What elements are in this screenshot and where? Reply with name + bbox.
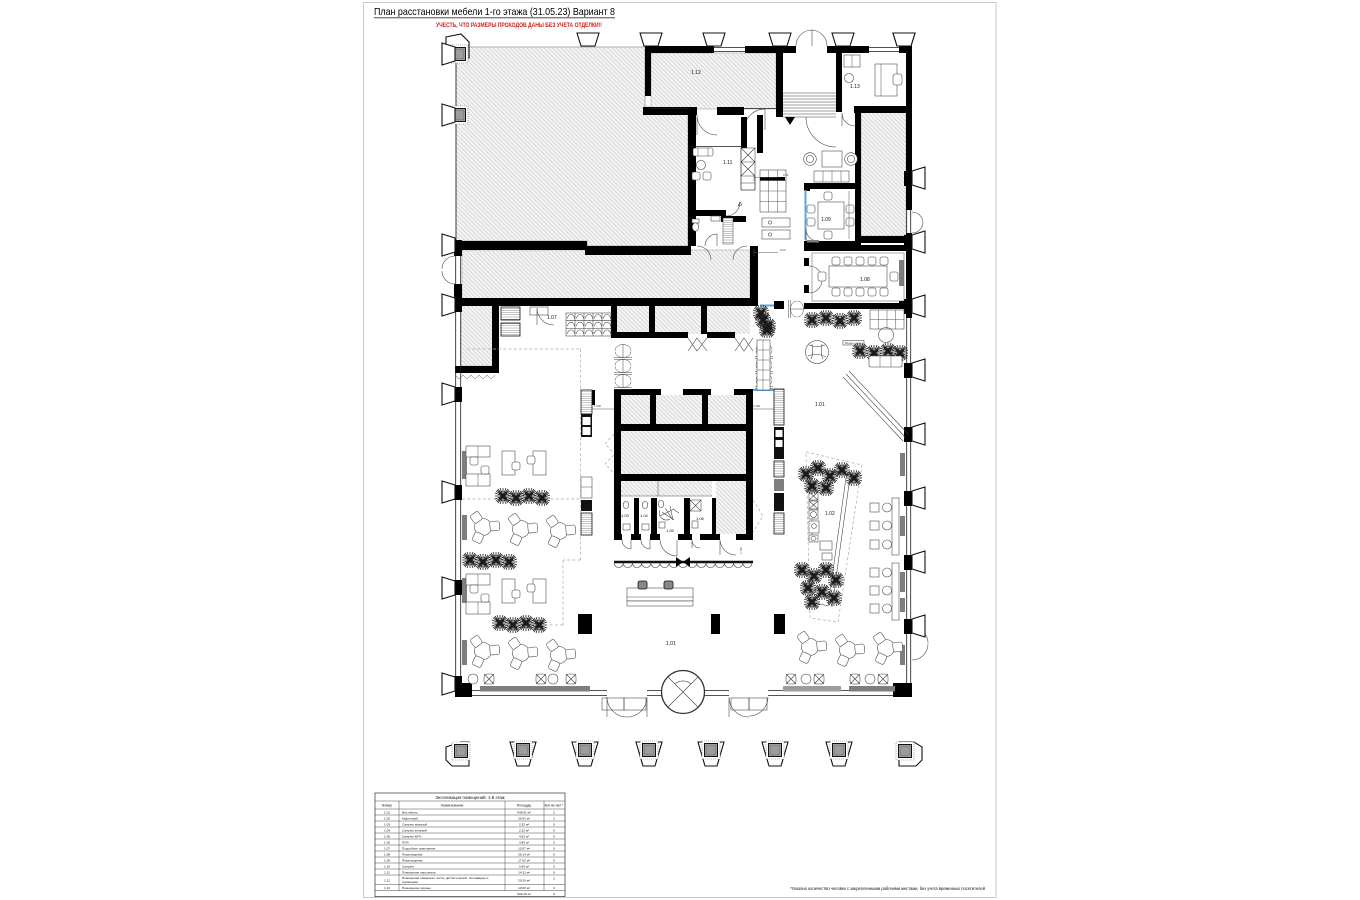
svg-text:0: 0: [553, 858, 555, 862]
svg-text:1.03: 1.03: [621, 513, 630, 518]
svg-text:Наименование: Наименование: [441, 804, 464, 808]
svg-text:Переговорная: Переговорная: [402, 858, 423, 862]
svg-text:1.08: 1.08: [384, 852, 390, 856]
svg-text:1.08: 1.08: [860, 277, 870, 283]
svg-text:1.500: 1.500: [753, 404, 760, 408]
svg-text:Кафетерий: Кафетерий: [402, 816, 418, 820]
svg-text:1.02: 1.02: [384, 816, 390, 820]
svg-text:0: 0: [553, 822, 555, 826]
svg-text:1.12: 1.12: [384, 878, 390, 882]
svg-text:10.00 м²: 10.00 м²: [518, 886, 530, 890]
svg-text:26.91 м²: 26.91 м²: [518, 816, 530, 820]
svg-text:2: 2: [553, 816, 555, 820]
svg-text:902.20 м²: 902.20 м²: [517, 892, 530, 896]
svg-text:1.10: 1.10: [384, 864, 390, 868]
svg-text:1.02: 1.02: [825, 511, 835, 517]
svg-text:0.00: 0.00: [780, 248, 786, 252]
svg-text:Санузел: Санузел: [402, 864, 414, 868]
svg-text:1.07: 1.07: [547, 315, 557, 321]
svg-text:1.11: 1.11: [384, 870, 390, 874]
svg-text:9: 9: [553, 892, 555, 896]
svg-text:Помещение охраны: Помещение охраны: [402, 886, 431, 890]
svg-text:17.02 м²: 17.02 м²: [518, 858, 530, 862]
svg-text:План расстановки мебели 1-го э: План расстановки мебели 1-го этажа (31.0…: [374, 6, 615, 18]
svg-text:УЧЕСТЬ, ЧТО РАЗМЕРЫ ПРОХОДОВ Д: УЧЕСТЬ, ЧТО РАЗМЕРЫ ПРОХОДОВ ДАНЫ БЕЗ УЧ…: [436, 22, 602, 29]
svg-text:0: 0: [553, 834, 555, 838]
svg-text:охранщика: охранщика: [402, 880, 418, 884]
svg-text:0.00: 0.00: [783, 173, 789, 177]
svg-text:Санузел женский: Санузел женский: [402, 828, 427, 832]
svg-text:1.150: 1.150: [739, 547, 743, 554]
svg-text:1.500: 1.500: [594, 404, 601, 408]
svg-text:4.53 м²: 4.53 м²: [519, 834, 529, 838]
svg-text:*Указано количество человек с: *Указано количество человек с закрепленн…: [790, 886, 985, 891]
svg-text:1.07: 1.07: [384, 846, 390, 850]
svg-text:0: 0: [553, 840, 555, 844]
svg-text:Кол-во чел.*: Кол-во чел.*: [545, 804, 564, 808]
svg-text:648.91 м²: 648.91 м²: [517, 810, 530, 814]
svg-text:Номер: Номер: [382, 804, 392, 808]
svg-text:3: 3: [553, 877, 555, 881]
svg-text:Медиа экран: Медиа экран: [845, 341, 862, 345]
svg-text:0: 0: [553, 852, 555, 856]
svg-text:3.80 м²: 3.80 м²: [519, 840, 529, 844]
svg-text:1.13: 1.13: [850, 84, 860, 90]
svg-text:1.03: 1.03: [384, 822, 390, 826]
svg-text:25.14 м²: 25.14 м²: [518, 852, 530, 856]
svg-text:1.13: 1.13: [384, 886, 390, 890]
svg-text:1.09: 1.09: [821, 217, 831, 223]
svg-text:ПУИ: ПУИ: [402, 840, 408, 844]
svg-text:2.60 м²: 2.60 м²: [519, 864, 529, 868]
svg-text:0: 0: [553, 846, 555, 850]
svg-text:1.12: 1.12: [691, 70, 701, 76]
svg-text:Подсобное помещение: Подсобное помещение: [402, 846, 436, 850]
svg-text:12.07 м²: 12.07 м²: [518, 846, 530, 850]
svg-text:Санузел МГН: Санузел МГН: [402, 834, 421, 838]
svg-text:Переговорная: Переговорная: [402, 852, 423, 856]
svg-text:1.05: 1.05: [666, 528, 675, 533]
svg-text:0: 0: [553, 864, 555, 868]
svg-text:2.32 м²: 2.32 м²: [519, 822, 529, 826]
svg-text:2: 2: [553, 810, 555, 814]
svg-text:29.26 м²: 29.26 м²: [518, 878, 530, 882]
svg-text:Санузел мужской: Санузел мужской: [402, 822, 427, 826]
svg-text:1.01: 1.01: [666, 641, 676, 647]
svg-text:2: 2: [553, 886, 555, 890]
svg-text:0: 0: [553, 828, 555, 832]
svg-text:1.09: 1.09: [384, 858, 390, 862]
svg-text:1.01: 1.01: [384, 810, 390, 814]
svg-text:1.06: 1.06: [384, 840, 390, 844]
svg-text:1.06: 1.06: [696, 516, 705, 521]
svg-text:0: 0: [553, 870, 555, 874]
svg-text:Помещение персонала: Помещение персонала: [402, 870, 436, 874]
svg-text:14.31 м²: 14.31 м²: [518, 870, 530, 874]
svg-text:2.32 м²: 2.32 м²: [519, 828, 529, 832]
svg-text:1.11: 1.11: [723, 160, 733, 166]
svg-text:Экспликация помещений. 1-й эта: Экспликация помещений. 1-й этаж: [435, 795, 504, 800]
svg-text:Площадь: Площадь: [517, 804, 532, 808]
svg-text:1.01: 1.01: [815, 402, 825, 408]
svg-text:Вестибюль: Вестибюль: [402, 810, 418, 814]
svg-text:1.04: 1.04: [640, 513, 649, 518]
svg-text:1.04: 1.04: [384, 828, 390, 832]
svg-text:1.05: 1.05: [384, 834, 390, 838]
